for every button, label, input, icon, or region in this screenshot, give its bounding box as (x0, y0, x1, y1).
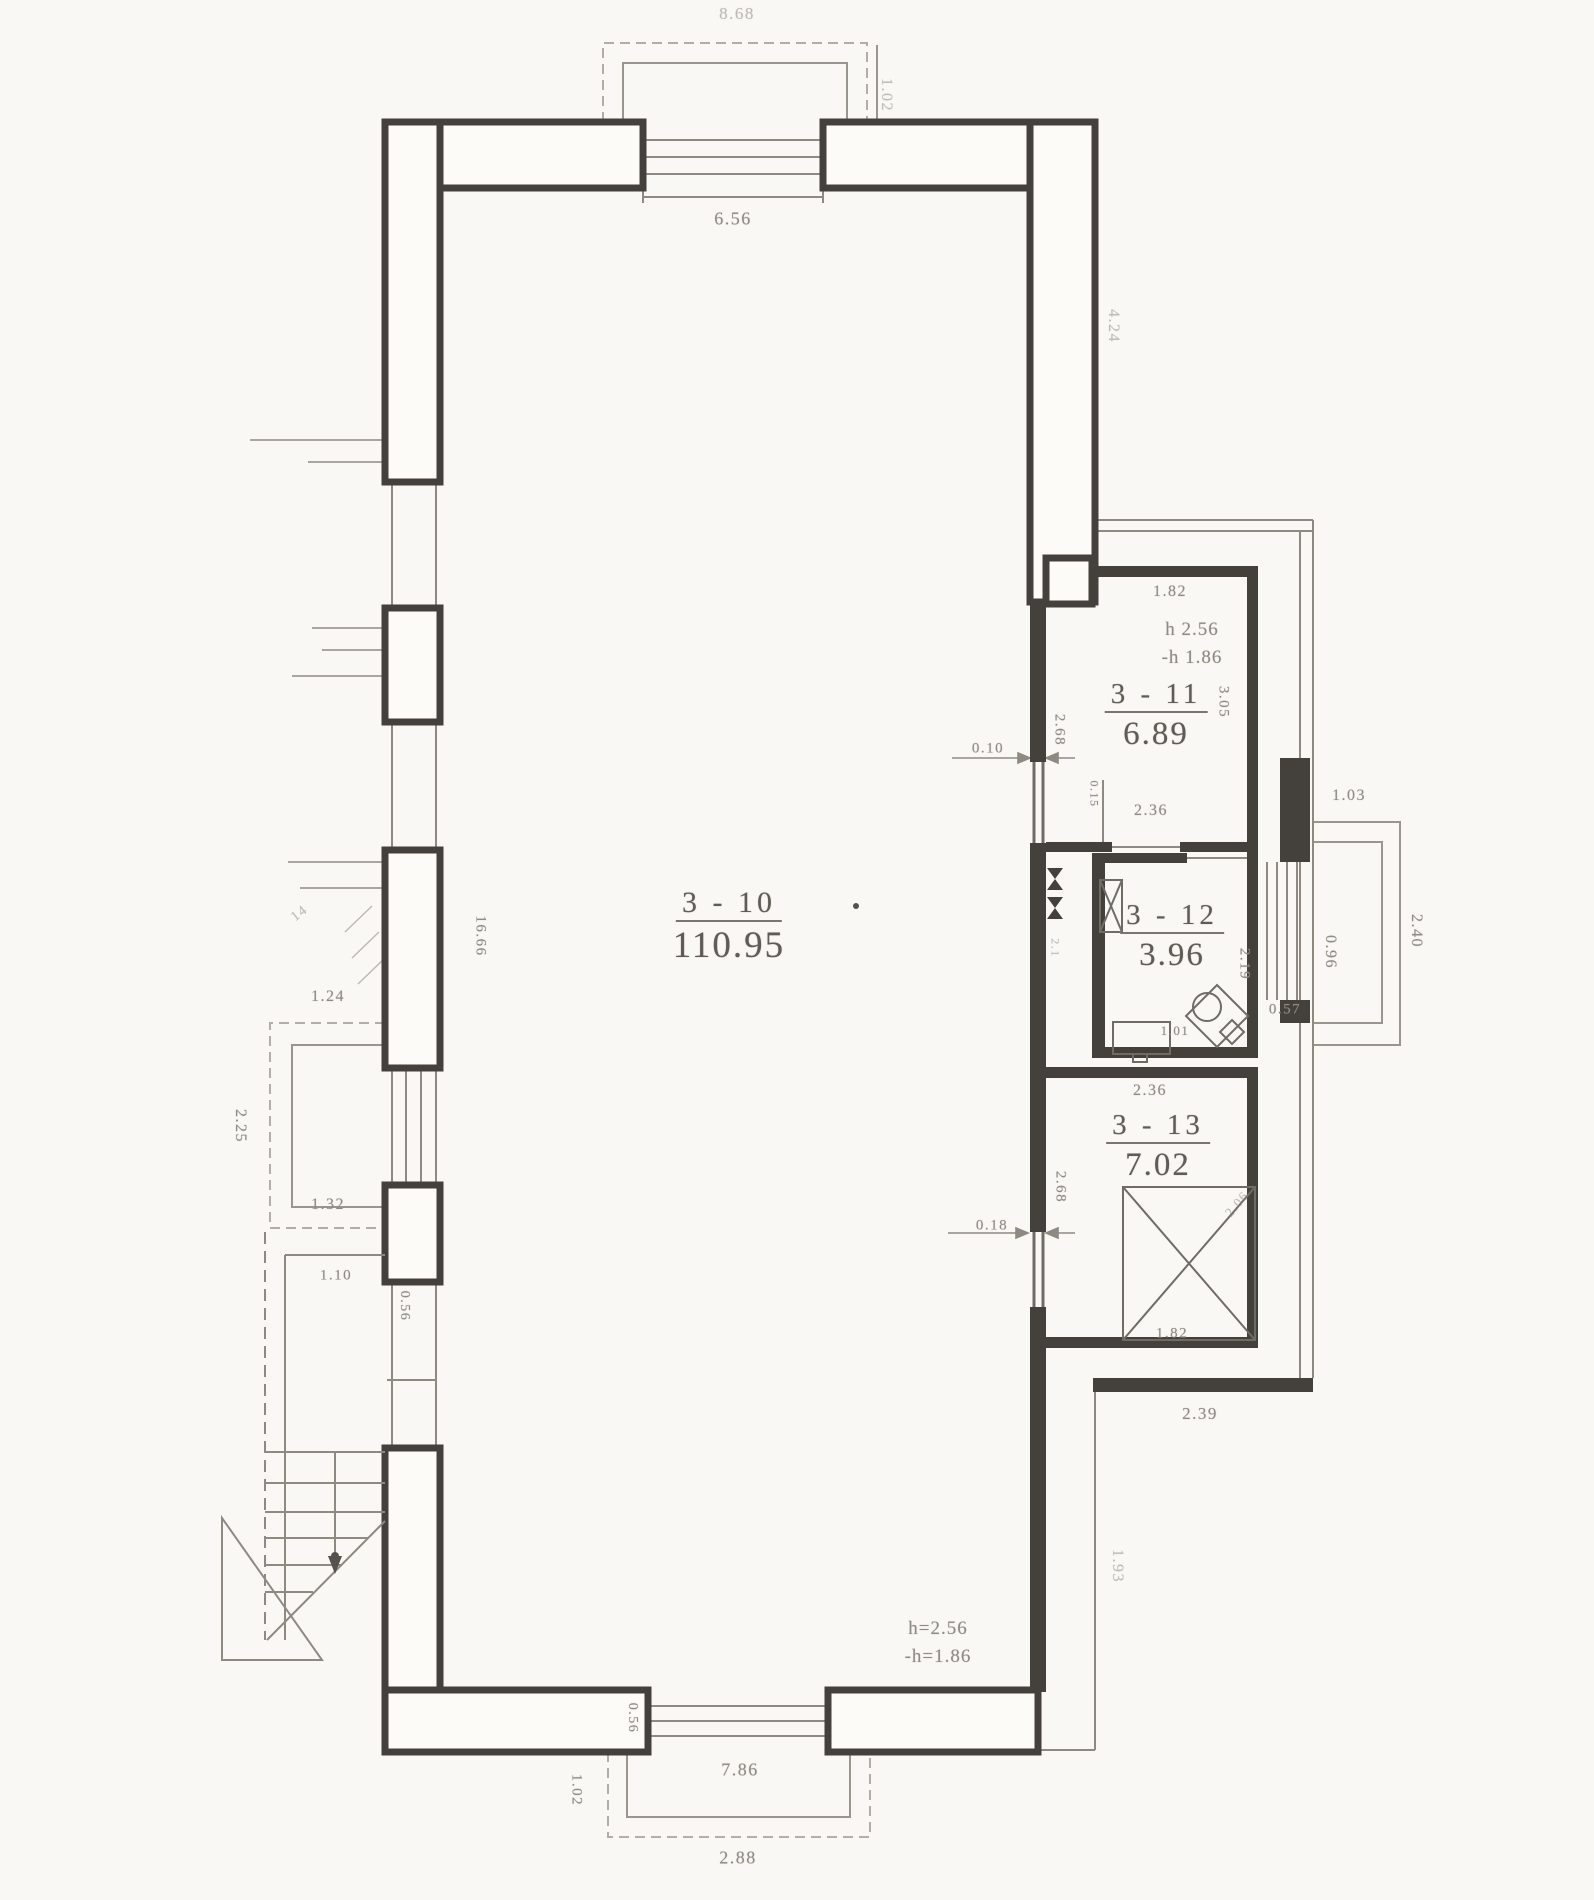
fixtures-layer (853, 868, 1255, 1340)
bottom-balcony-outline (608, 1752, 870, 1837)
thin-lines-layer (387, 140, 1313, 1750)
toilet-icon (1186, 985, 1248, 1047)
left-balcony-outline (270, 1023, 385, 1228)
plan-dot (853, 903, 859, 909)
pencil-marks (345, 906, 385, 984)
floorplan-drawing (0, 0, 1594, 1900)
top-balcony-inner (623, 63, 847, 122)
partition-walls-layer (1030, 566, 1313, 1692)
stairs-triangle (222, 1518, 322, 1660)
floorplan-page: 8.681.026.564.241.822.683.050.100.152.36… (0, 0, 1594, 1900)
top-balcony-outline (603, 43, 867, 122)
right-balcony-inner (1313, 842, 1382, 1023)
riser-icons (1047, 868, 1063, 919)
right-balcony-outline (1313, 822, 1400, 1045)
leader-arrows (250, 435, 1075, 1238)
outer-walls-layer (385, 122, 1095, 1752)
bottom-balcony-inner (627, 1752, 850, 1817)
stairs (222, 1232, 385, 1660)
duct-cross-icon (1123, 1187, 1255, 1340)
left-balcony-inner (292, 1045, 382, 1207)
